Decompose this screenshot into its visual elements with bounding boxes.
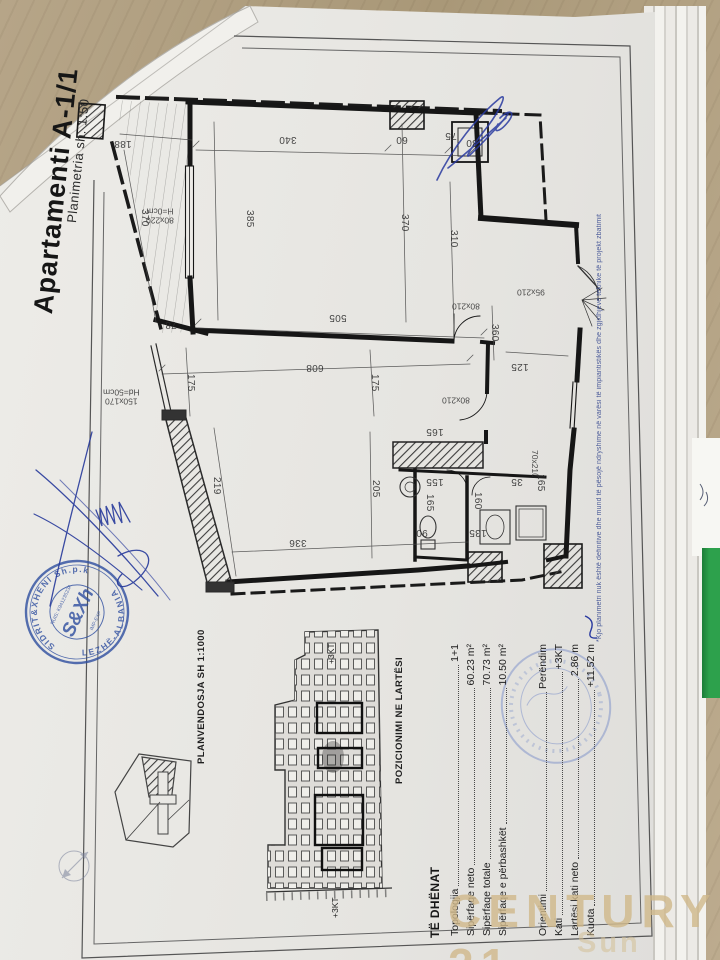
door-size-label: 80x210	[452, 301, 480, 310]
elevation-label: POZICIONIMI NE LARTËSI	[394, 657, 405, 784]
leader-dots	[458, 665, 459, 886]
row-value: +11.52 m	[585, 644, 597, 687]
dim-label: 219	[211, 477, 222, 495]
apartment-plan	[77, 97, 606, 594]
floorplan-drawing: SIDRIT&XHENI Sh.p.k LEZHË-ALBANIA S&Xh N…	[0, 0, 720, 960]
dim-label: 370	[399, 214, 410, 232]
building-elevation	[266, 630, 392, 897]
dim-label: 90	[416, 527, 428, 538]
door-size-label: 80x220 H=0cm	[146, 206, 174, 225]
dim-label: 78	[165, 319, 177, 330]
leader-dots	[546, 692, 547, 891]
door-size-label: 80x210	[442, 395, 470, 404]
window-height: Hd=50cm	[103, 387, 140, 397]
company-stamp: SIDRIT&XHENI Sh.p.k LEZHË-ALBANIA S&Xh N…	[9, 544, 145, 680]
dim-label: 175	[369, 374, 380, 392]
leader-dots	[578, 679, 579, 859]
dim-label: 155	[426, 476, 444, 487]
dim-label: 175	[185, 374, 196, 392]
dim-label: 205	[370, 480, 381, 498]
dim-label: 385	[244, 210, 255, 228]
photo-of-floorplan-sheet: SIDRIT&XHENI Sh.p.k LEZHË-ALBANIA S&Xh N…	[0, 0, 720, 960]
century21-sun-watermark: Sun	[577, 927, 641, 960]
floor-tag-bottom: +3KT	[330, 897, 340, 918]
row-value: Perëndim	[537, 644, 549, 689]
dim-label: 75	[445, 130, 457, 141]
leader-dots	[490, 688, 491, 859]
row-value: 1+1	[449, 644, 461, 662]
dim-label: 608	[306, 362, 324, 373]
window-size-label: 150x170 Hd=50cm	[103, 387, 140, 406]
dim-label: 336	[289, 537, 307, 548]
dim-label: 160	[472, 492, 483, 510]
leader-dots	[474, 688, 475, 864]
pen-scribble-margin	[700, 484, 708, 506]
row-value: 60.23 m²	[465, 644, 477, 685]
dim-label: 370	[139, 209, 150, 227]
bath-fixtures	[400, 477, 546, 549]
dim-label: 35	[511, 476, 523, 487]
row-value: 70.73 m²	[481, 644, 493, 685]
dim-label: 135	[469, 527, 487, 538]
site-key-plan	[115, 754, 191, 847]
dim-label: 125	[511, 361, 529, 372]
leader-dots	[506, 688, 507, 824]
dim-label: 165	[424, 494, 435, 512]
dim-label: 360	[489, 324, 500, 342]
data-table-header: TË DHËNAT	[428, 867, 442, 938]
door-size-label: 70x210	[530, 450, 539, 478]
north-arrow-icon	[59, 851, 89, 881]
row-value: 10.50 m²	[497, 644, 509, 685]
door-size: 80x220	[146, 216, 174, 226]
row-value: 2.86 m	[569, 644, 581, 676]
window-size: 150x170	[105, 397, 138, 407]
stamp-impexp-text: IMP-EXP	[89, 610, 103, 632]
dim-label: 30	[466, 137, 478, 148]
row-value: +3KT	[553, 644, 565, 669]
door-height: H=0cm	[146, 206, 173, 216]
dim-label: 310	[448, 230, 459, 248]
kitchen-counter	[393, 442, 483, 468]
site-plan-label: PLANVENDOSJA SH 1:1000	[196, 629, 207, 764]
dim-label: 340	[279, 134, 297, 145]
dim-label: 60	[396, 134, 408, 145]
disclaimer-footnote: *Kjo planimetri nuk është definitive dhe…	[596, 214, 603, 642]
floor-tag-top: +3KT	[326, 643, 336, 664]
dim-label: 188	[114, 138, 132, 149]
dim-label: 505	[329, 312, 347, 323]
leader-dots	[594, 690, 595, 905]
door-size-label: 95x210	[517, 287, 545, 296]
leader-dots	[562, 672, 563, 915]
dim-label: 165	[426, 426, 444, 437]
